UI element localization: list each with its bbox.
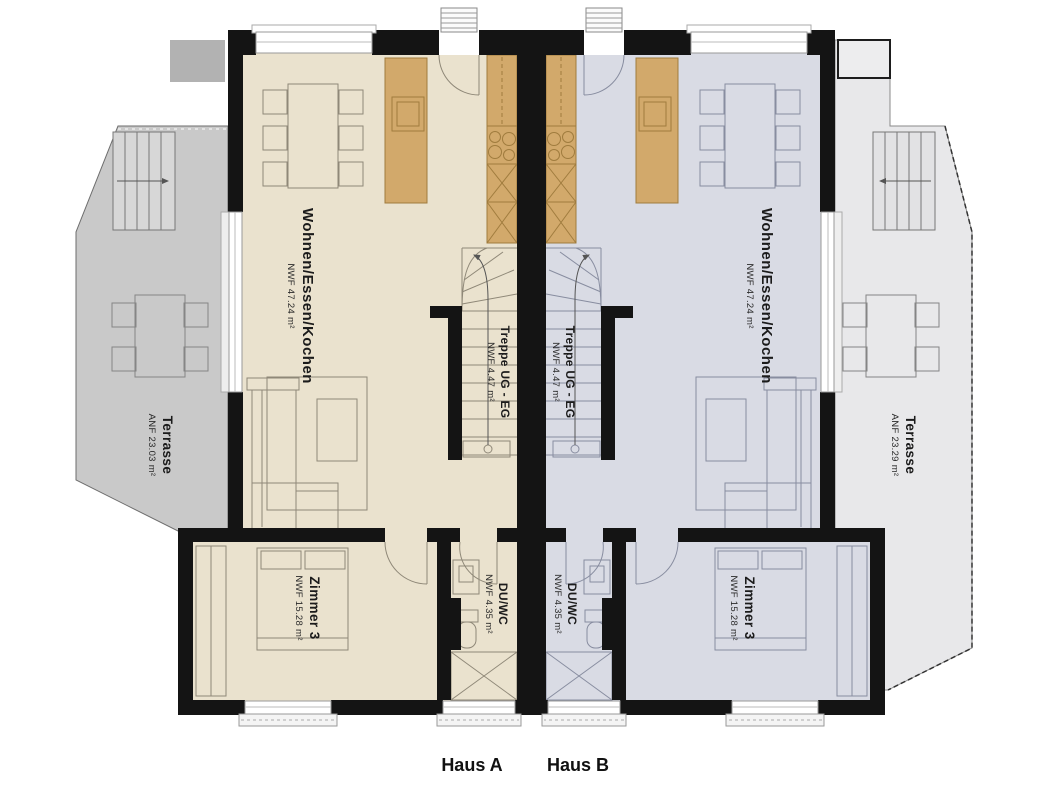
label-terrace-a: Terrasse ANF 23.03 m² bbox=[146, 414, 175, 477]
svg-text:Wohnen/Essen/Kochen: Wohnen/Essen/Kochen bbox=[299, 208, 316, 384]
svg-text:NWF 4.35 m²: NWF 4.35 m² bbox=[552, 574, 563, 634]
svg-text:ANF 23.29 m²: ANF 23.29 m² bbox=[889, 414, 900, 477]
svg-text:Terrasse: Terrasse bbox=[903, 416, 918, 475]
svg-text:NWF 4.47 m²: NWF 4.47 m² bbox=[485, 342, 496, 402]
svg-text:NWF 47.24 m²: NWF 47.24 m² bbox=[744, 263, 755, 328]
label-room3-a: Zimmer 3 NWF 15.28 m² bbox=[293, 575, 322, 640]
floor-plan-svg: Wohnen/Essen/Kochen NWF 47.24 m² Wohnen/… bbox=[0, 0, 1047, 786]
svg-text:NWF 15.28 m²: NWF 15.28 m² bbox=[728, 575, 739, 640]
label-room3-b: Zimmer 3 NWF 15.28 m² bbox=[728, 575, 757, 640]
caption-haus-b: Haus B bbox=[547, 755, 609, 775]
svg-text:Treppe UG - EG: Treppe UG - EG bbox=[563, 326, 577, 419]
svg-text:NWF 4.35 m²: NWF 4.35 m² bbox=[483, 574, 494, 634]
svg-text:ANF 23.03 m²: ANF 23.03 m² bbox=[146, 414, 157, 477]
house-a bbox=[178, 8, 532, 726]
svg-text:DU/WC: DU/WC bbox=[496, 583, 510, 625]
svg-text:NWF 4.47 m²: NWF 4.47 m² bbox=[550, 342, 561, 402]
svg-text:Zimmer 3: Zimmer 3 bbox=[307, 576, 322, 639]
label-bath-b: DU/WC NWF 4.35 m² bbox=[552, 574, 579, 634]
svg-text:NWF 47.24 m²: NWF 47.24 m² bbox=[285, 263, 296, 328]
garden-stairs-left bbox=[113, 132, 175, 230]
caption-haus-a: Haus A bbox=[441, 755, 502, 775]
svg-text:DU/WC: DU/WC bbox=[565, 583, 579, 625]
house-b bbox=[532, 8, 886, 726]
lightwell-right bbox=[838, 40, 890, 78]
lightwell-left bbox=[170, 40, 225, 82]
svg-text:Wohnen/Essen/Kochen: Wohnen/Essen/Kochen bbox=[758, 208, 775, 384]
label-bath-a: DU/WC NWF 4.35 m² bbox=[483, 574, 510, 634]
svg-text:Terrasse: Terrasse bbox=[160, 416, 175, 475]
svg-text:Treppe UG - EG: Treppe UG - EG bbox=[498, 326, 512, 419]
floor-plan: Wohnen/Essen/Kochen NWF 47.24 m² Wohnen/… bbox=[0, 0, 1047, 786]
label-terrace-b: Terrasse ANF 23.29 m² bbox=[889, 414, 918, 477]
svg-text:Zimmer 3: Zimmer 3 bbox=[742, 576, 757, 639]
svg-text:NWF 15.28 m²: NWF 15.28 m² bbox=[293, 575, 304, 640]
garden-stairs-right bbox=[873, 132, 935, 230]
